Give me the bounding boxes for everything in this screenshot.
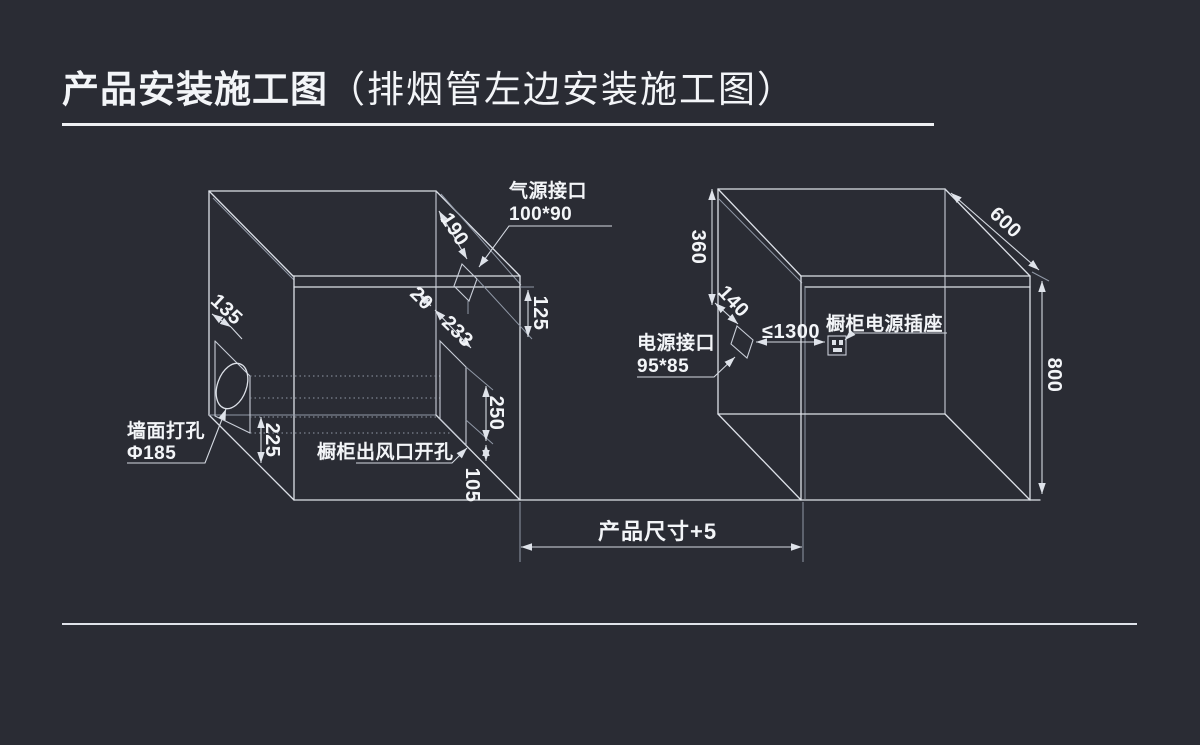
dim-105: 105 [461, 468, 483, 503]
dim-135: 135 [206, 290, 247, 330]
dim-233: 233 [437, 312, 477, 352]
wall-hole-label: 墙面打孔 [127, 419, 205, 442]
dim-1300: ≤1300 [762, 321, 820, 343]
dim-800: 800 [1043, 358, 1065, 393]
dim-225: 225 [261, 423, 283, 458]
dim-125: 125 [529, 296, 551, 331]
socket-icon [828, 336, 846, 355]
power-port-size: 95*85 [637, 356, 689, 377]
dim-360: 360 [687, 230, 709, 265]
wall-hole-ellipse [210, 359, 253, 413]
wall-hole-size: Φ185 [127, 443, 176, 464]
dim-140: 140 [713, 281, 753, 322]
power-port-label: 电源接口 [637, 331, 715, 354]
gas-port-cutout [454, 264, 477, 301]
drawing-canvas: 135 190 125 20 233 250 105 225 360 140 6… [0, 0, 1200, 745]
power-port-cutout [731, 326, 753, 358]
outlet-cutout [440, 341, 466, 445]
outlet-cutout-label: 橱柜出风口开孔 [316, 440, 454, 463]
gas-port-size: 100*90 [509, 204, 572, 225]
socket-label: 橱柜电源插座 [825, 312, 943, 335]
annotation-text: 135 190 125 20 233 250 105 225 360 140 6… [127, 179, 1065, 544]
installation-drawing-page: 产品安装施工图（排烟管左边安装施工图） [0, 0, 1200, 745]
product-size-label: 产品尺寸+5 [598, 519, 717, 544]
gas-port-label: 气源接口 [508, 179, 587, 202]
dim-250: 250 [485, 396, 507, 431]
